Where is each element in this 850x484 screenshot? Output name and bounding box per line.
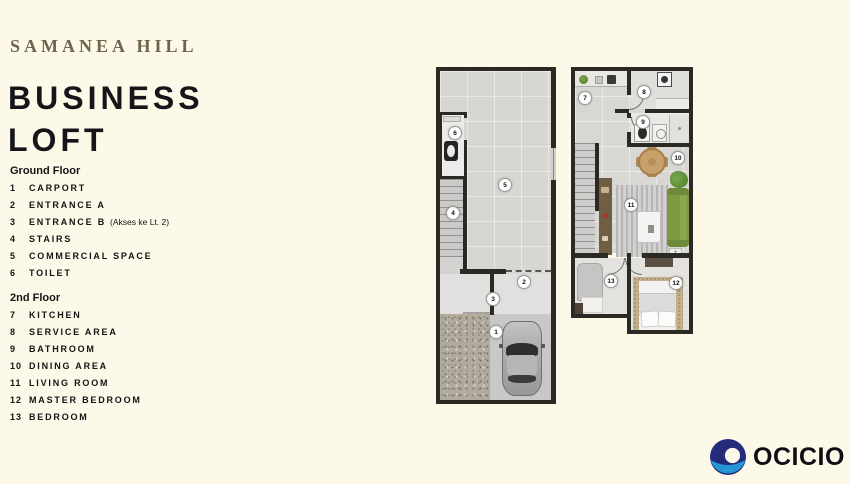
gravel-yard bbox=[440, 314, 490, 400]
legend-item-entrance-b: 3 ENTRANCE B (Akses ke Lt. 2) bbox=[10, 217, 230, 234]
legend-item-entrance-b-note: (Akses ke Lt. 2) bbox=[110, 217, 169, 227]
marker-kitchen: 7 bbox=[578, 91, 592, 105]
tv-console-icon bbox=[599, 178, 612, 255]
toilet-wall-right-a bbox=[464, 112, 467, 118]
sofa-icon bbox=[667, 188, 689, 247]
toilet-wall-right-b bbox=[464, 140, 467, 179]
car-top-view-icon bbox=[502, 321, 542, 396]
bed-single-sheet bbox=[581, 297, 603, 313]
legend-item-toilet: 6 TOILET bbox=[10, 268, 230, 285]
ocicio-ring-icon bbox=[710, 439, 746, 475]
marker-entrance-b: 3 bbox=[486, 292, 500, 306]
marker-carport: 1 bbox=[489, 325, 503, 339]
toilet-icon bbox=[444, 141, 458, 161]
coffee-table-icon bbox=[637, 211, 661, 243]
legend-item-commercial-space: 5 COMMERCIAL SPACE bbox=[10, 251, 230, 268]
stairs-second-icon bbox=[575, 143, 595, 257]
marker-toilet: 6 bbox=[448, 126, 462, 140]
legend-item-service-area: 8 SERVICE AREA bbox=[10, 327, 230, 344]
floorplan-brochure: SAMANEA HILL BUSINESS LOFT Ground Floor … bbox=[0, 0, 850, 484]
marker-commercial-space: 5 bbox=[498, 178, 512, 192]
service-bath-wall-b bbox=[645, 109, 689, 113]
legend-item-entrance-a: 2 ENTRANCE A bbox=[10, 200, 230, 217]
pillow-icon bbox=[658, 311, 677, 328]
marker-living-room: 11 bbox=[624, 198, 638, 212]
second-floor-plan: + 7 8 9 10 11 12 13 bbox=[571, 67, 693, 334]
wall-top-2f bbox=[571, 67, 693, 71]
legend-second-heading: 2nd Floor bbox=[10, 292, 230, 304]
brand-name: SAMANEA HILL bbox=[10, 36, 198, 57]
bed-double-icon bbox=[639, 281, 676, 330]
ocicio-logo: OCICIO bbox=[710, 438, 845, 476]
washing-machine-icon bbox=[657, 72, 672, 87]
legend-ground-floor: Ground Floor 1 CARPORT 2 ENTRANCE A 3 EN… bbox=[10, 165, 230, 285]
legend-item-carport: 1 CARPORT bbox=[10, 183, 230, 200]
bedroom-divider-wall bbox=[627, 253, 631, 334]
entrance-b-threshold bbox=[463, 312, 490, 314]
legend-second-floor: 2nd Floor 7 KITCHEN 8 SERVICE AREA 9 BAT… bbox=[10, 292, 230, 429]
legend-ground-heading: Ground Floor bbox=[10, 165, 230, 177]
legend-item-living-room: 11 LIVING ROOM bbox=[10, 378, 230, 395]
marker-service-area: 8 bbox=[637, 85, 651, 99]
kitchen-counter-icon bbox=[575, 72, 627, 87]
wall-right-lower bbox=[551, 180, 556, 404]
wall-left-2f bbox=[571, 67, 575, 318]
marker-stairs: 4 bbox=[446, 206, 460, 220]
stairs-wall bbox=[463, 179, 467, 274]
logo-text: OCICIO bbox=[753, 443, 845, 472]
marker-dining-area: 10 bbox=[671, 151, 685, 165]
commercial-bottom-wall bbox=[460, 269, 506, 274]
plant-small-icon bbox=[579, 75, 588, 84]
wall-bottom-2f bbox=[627, 330, 693, 334]
wall-bottom-left-2f bbox=[571, 314, 627, 318]
window-opening bbox=[551, 148, 556, 180]
page-title-line1: BUSINESS bbox=[8, 80, 204, 117]
legend-item-dining-area: 10 DINING AREA bbox=[10, 361, 230, 378]
stove-icon bbox=[607, 75, 616, 84]
bedrooms-wall-a bbox=[571, 253, 608, 258]
toilet-wall-left bbox=[439, 112, 442, 179]
wall-right-2f bbox=[689, 67, 693, 334]
legend-item-bathroom: 9 BATHROOM bbox=[10, 344, 230, 361]
wall-bottom bbox=[436, 400, 556, 404]
legend-item-stairs: 4 STAIRS bbox=[10, 234, 230, 251]
bath-bottom-wall bbox=[627, 143, 689, 147]
marker-master-bedroom: 12 bbox=[669, 276, 683, 290]
wall-right-upper bbox=[551, 67, 556, 148]
marker-bedroom: 13 bbox=[604, 274, 618, 288]
wall-top bbox=[436, 67, 556, 71]
dresser-icon bbox=[645, 258, 673, 267]
toilet-wall-top bbox=[439, 112, 467, 115]
marker-bathroom: 9 bbox=[636, 115, 650, 129]
entrance-a-sliding-door bbox=[506, 270, 551, 272]
page-title-line2: LOFT bbox=[8, 122, 108, 159]
marker-entrance-a: 2 bbox=[517, 275, 531, 289]
shower-area bbox=[669, 115, 689, 143]
dining-table-icon bbox=[638, 148, 666, 176]
legend-item-master-bedroom: 12 MASTER BEDROOM bbox=[10, 395, 230, 412]
legend-item-bedroom: 13 BEDROOM bbox=[10, 412, 230, 429]
ground-floor-plan: 1 2 3 4 5 6 bbox=[436, 67, 556, 404]
bed-single-icon bbox=[577, 263, 603, 301]
sink-icon bbox=[443, 116, 461, 122]
vanity-icon bbox=[652, 124, 667, 142]
kitchen-service-wall bbox=[627, 71, 631, 95]
service-counter-icon bbox=[656, 98, 689, 109]
plant-icon bbox=[670, 171, 688, 188]
nightstand-icon bbox=[575, 303, 583, 314]
legend-item-kitchen: 7 KITCHEN bbox=[10, 310, 230, 327]
